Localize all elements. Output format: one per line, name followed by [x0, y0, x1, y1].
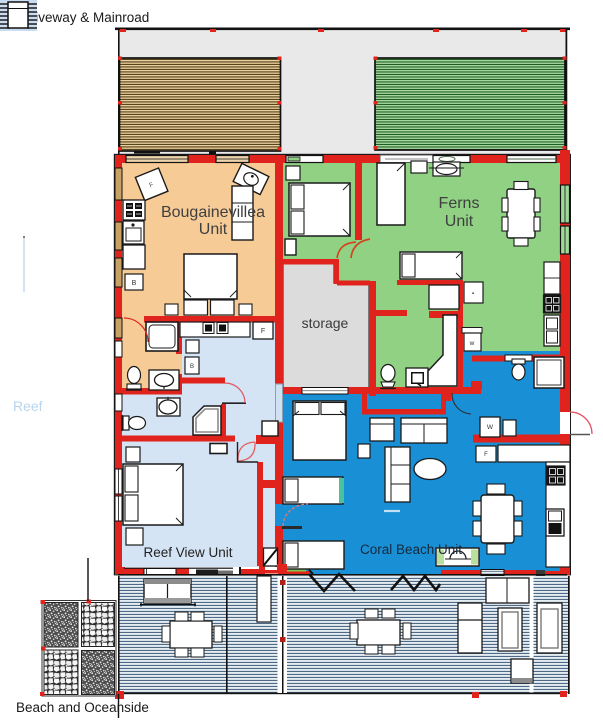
svg-text:Ferns: Ferns	[439, 195, 480, 212]
svg-text:storage: storage	[302, 315, 349, 331]
svg-text:Beach and Oceanside: Beach and Oceanside	[16, 700, 149, 715]
svg-text:B: B	[132, 280, 137, 287]
svg-text:Reef: Reef	[13, 398, 43, 414]
svg-text:W: W	[487, 424, 494, 431]
svg-text:▪: ▪	[472, 291, 474, 297]
svg-text:Bougainevillea: Bougainevillea	[161, 204, 265, 221]
svg-text:F: F	[261, 328, 265, 335]
svg-text:Unit: Unit	[445, 213, 474, 230]
svg-text:B: B	[190, 364, 194, 370]
svg-text:Unit: Unit	[199, 221, 228, 238]
svg-text:w: w	[469, 340, 475, 347]
svg-text:Coral Beach Unit: Coral Beach Unit	[360, 542, 462, 557]
svg-text:Reef View Unit: Reef View Unit	[143, 545, 232, 560]
svg-text:Driveway & Mainroad: Driveway & Mainroad	[21, 10, 149, 25]
svg-text:F: F	[484, 452, 488, 458]
